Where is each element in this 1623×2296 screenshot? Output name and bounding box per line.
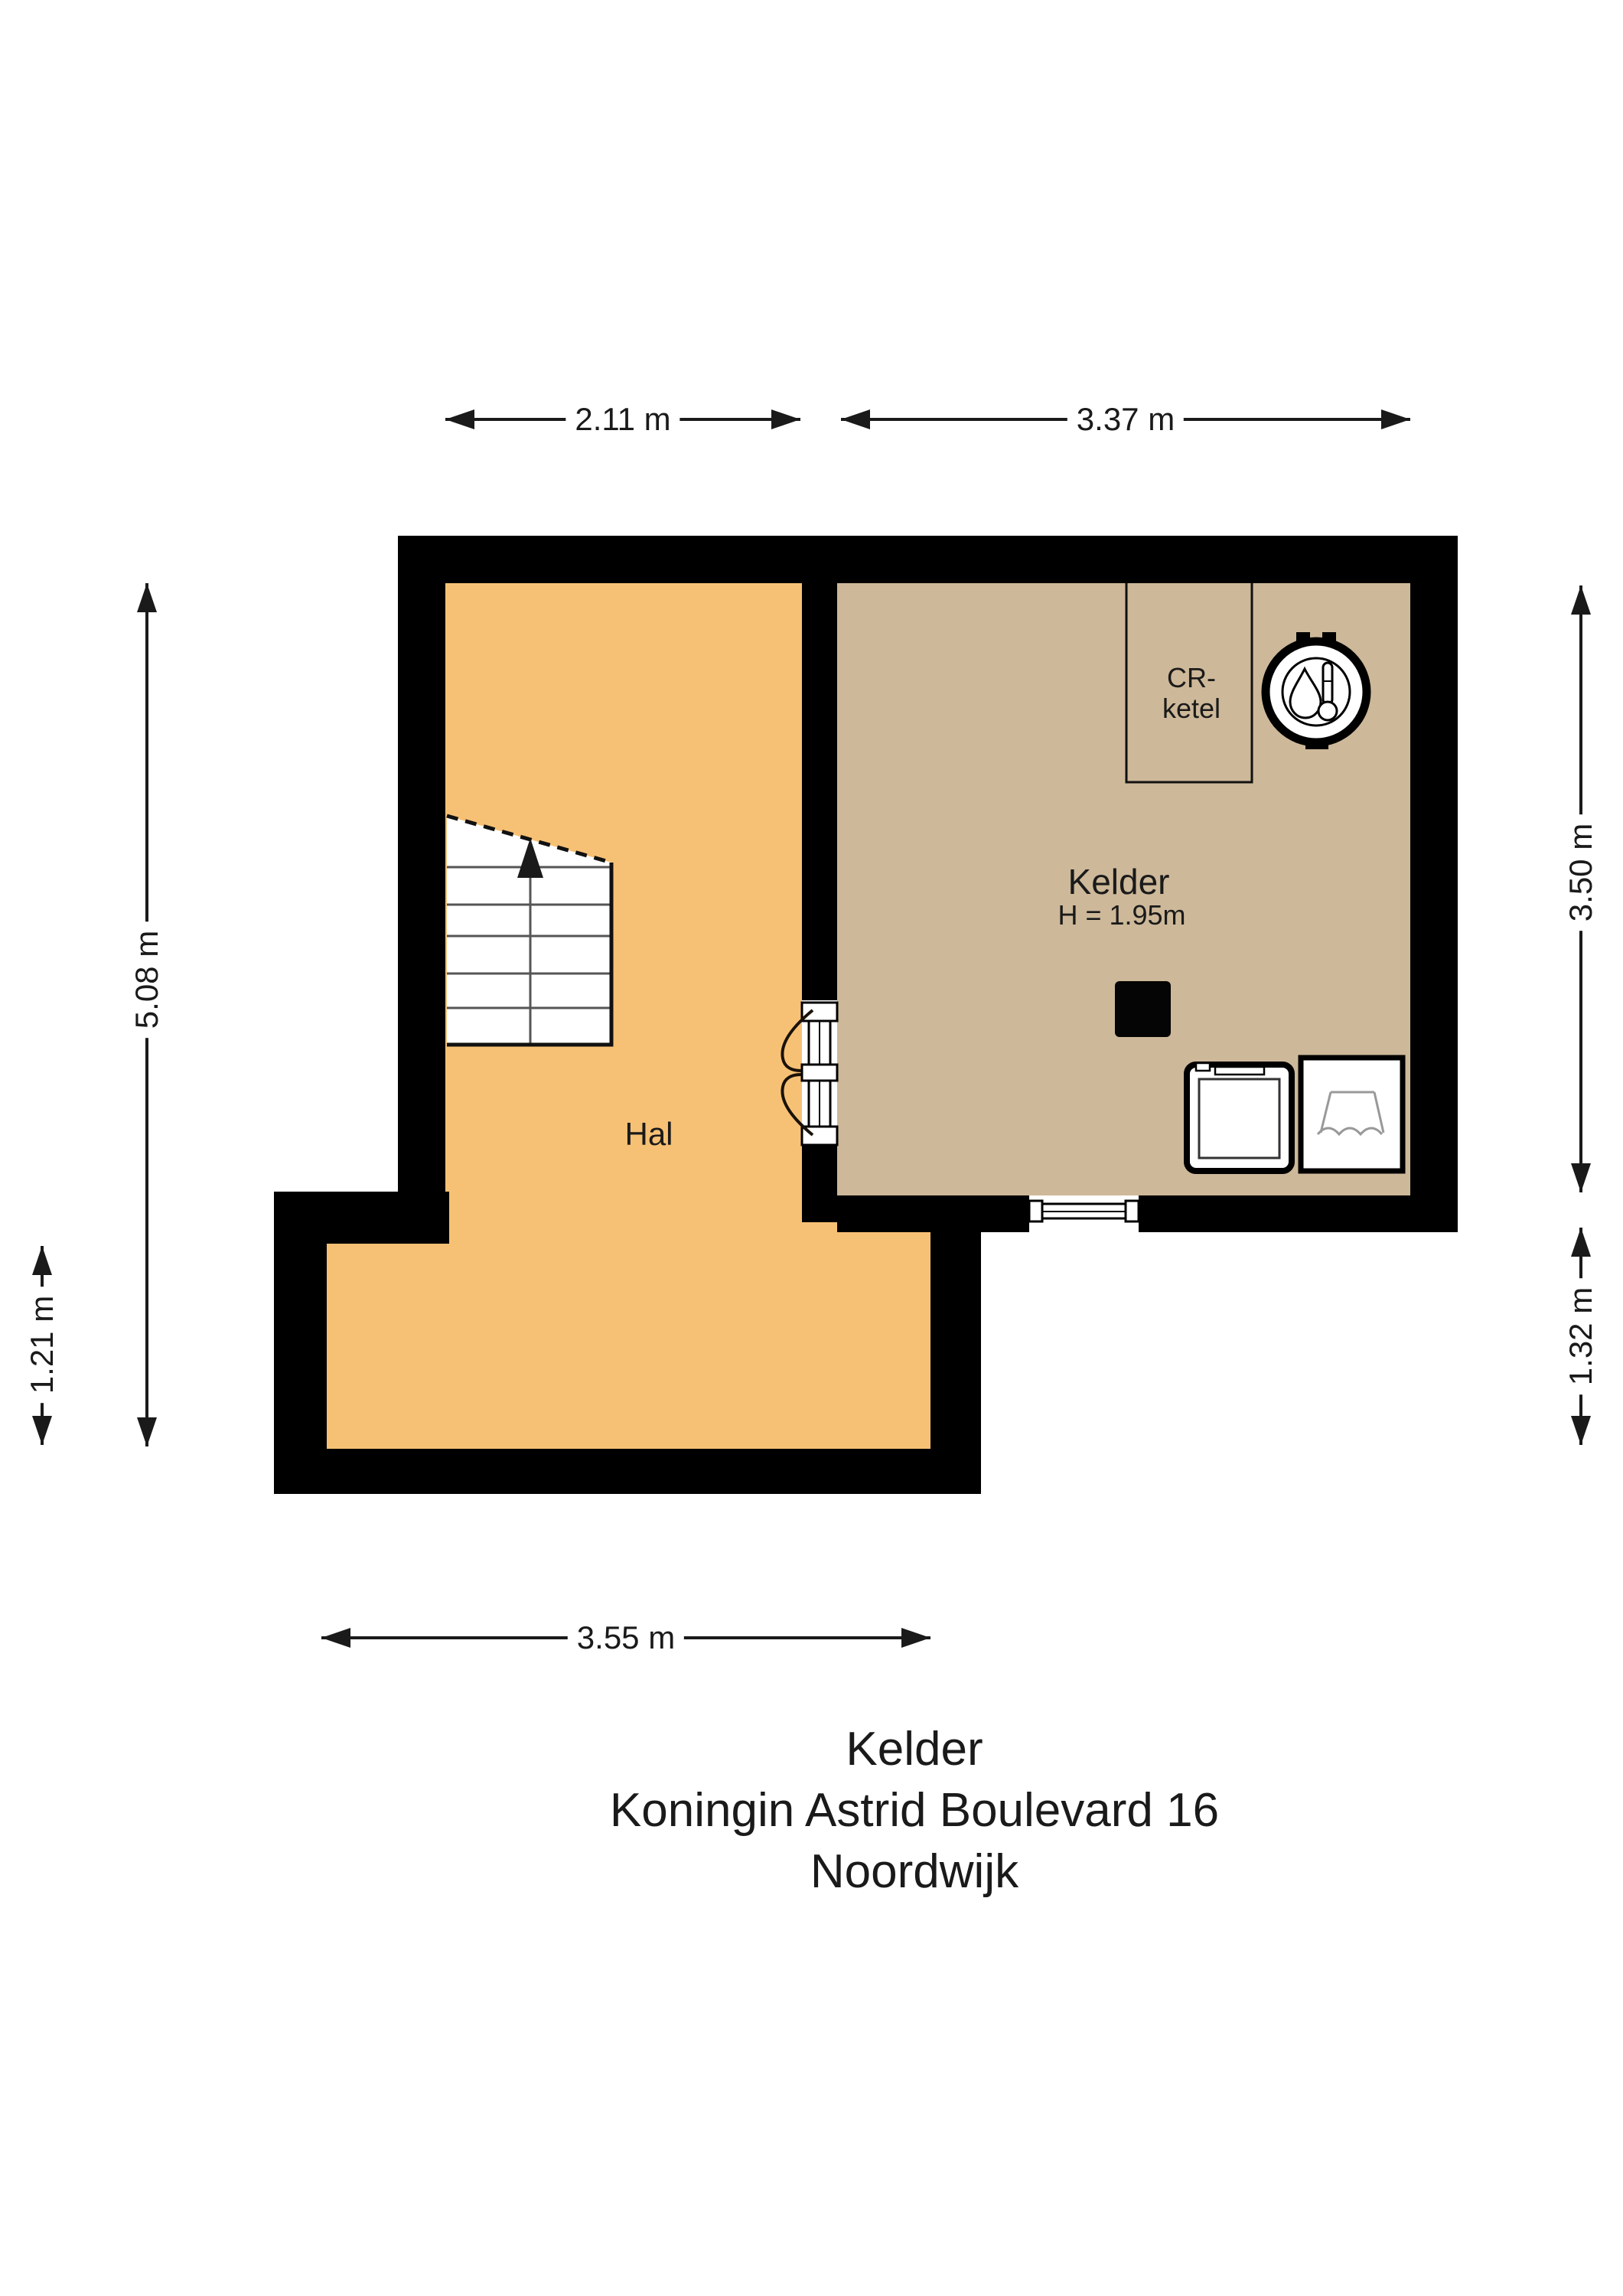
dim-label-hal-height: 5.08 m [127, 921, 167, 1038]
wall-kelder-bottom-right [1139, 1195, 1458, 1232]
page-title-room: Kelder [846, 1719, 983, 1780]
wall-divider-upper [802, 582, 837, 1000]
floor-plan-page: 2.11 m 3.37 m 5.08 m 1.21 m 3.50 m 1.32 … [0, 0, 1623, 2296]
dim-label-bottom-width: 3.55 m [568, 1618, 684, 1658]
window-symbol [1029, 1195, 1139, 1232]
wall-right [1410, 536, 1458, 1232]
sink-icon [1301, 1058, 1403, 1171]
wall-left-upper [398, 536, 445, 1244]
wall-divider-lower [802, 1145, 837, 1199]
closet-label-line2: ketel [1162, 693, 1221, 724]
page-title-city: Noordwijk [810, 1841, 1018, 1903]
closet-label-line1: CR- [1167, 663, 1216, 693]
wall-left-lower [274, 1192, 327, 1494]
floor-plan-drawing [0, 0, 1623, 2296]
wall-hal-bottom [274, 1449, 981, 1494]
room-label-kelder-height: H = 1.95m [1058, 899, 1185, 931]
page-title-address: Koningin Astrid Boulevard 16 [610, 1780, 1219, 1841]
dim-label-hal-width: 2.11 m [565, 400, 680, 439]
washing-machine-icon [1187, 1063, 1292, 1171]
dim-label-kelder-height: 3.50 m [1561, 814, 1601, 931]
dim-label-lower-right-height: 1.32 m [1561, 1278, 1601, 1394]
dim-label-step-height: 1.21 m [22, 1287, 62, 1403]
room-label-kelder: Kelder [1068, 861, 1170, 902]
wall-top [398, 536, 1458, 583]
dim-label-kelder-width: 3.37 m [1067, 400, 1184, 439]
chimney-block [1115, 981, 1171, 1037]
room-label-hal: Hal [624, 1116, 673, 1153]
